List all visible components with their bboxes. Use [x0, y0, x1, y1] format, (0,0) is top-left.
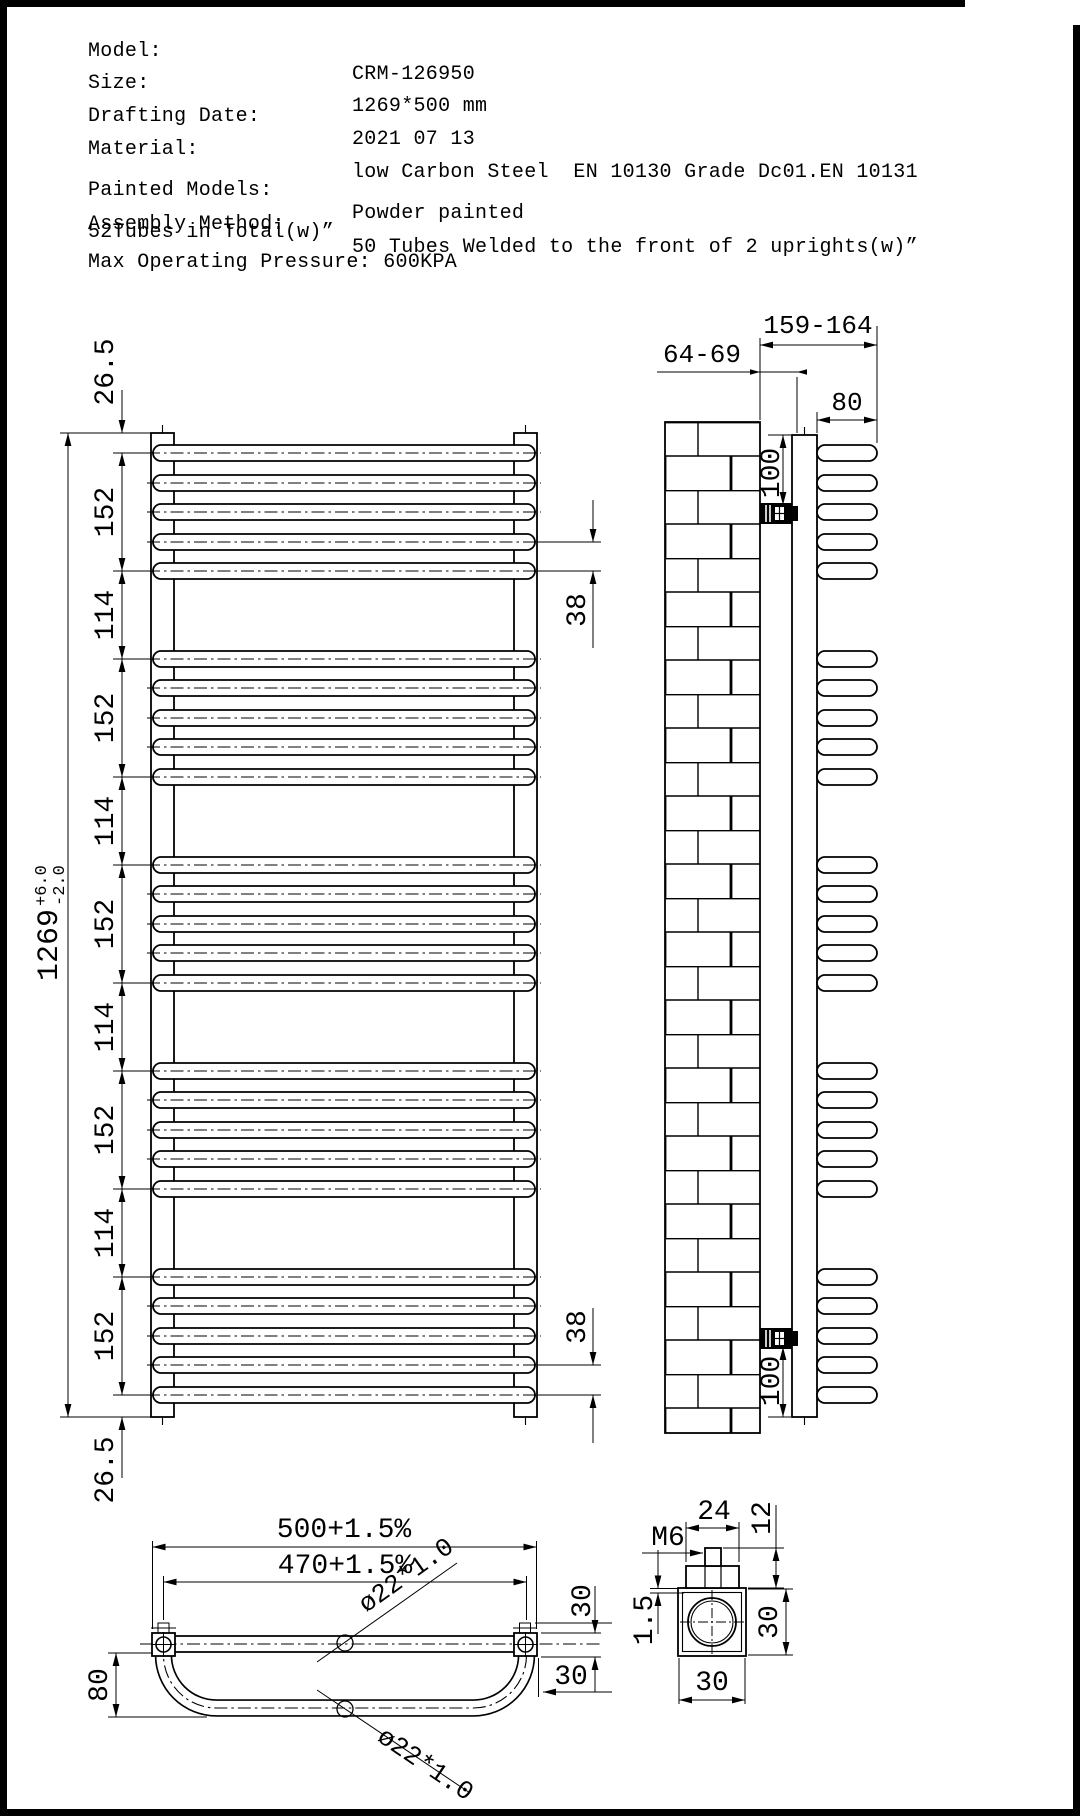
dim-label: 500+1.5%: [277, 1515, 412, 1546]
dim-label: 159-164: [763, 311, 872, 341]
technical-drawing: 1269 +6.0 -2.0: [0, 0, 1080, 1816]
front-dim-38-top: 38: [537, 500, 601, 648]
dim-label: 152: [91, 899, 122, 949]
dim-label: 80: [831, 388, 862, 418]
dim-label: 100: [757, 1356, 788, 1406]
bottom-dim-470: 470+1.5%: [164, 1551, 527, 1620]
bottom-dim-30-horiz: 30: [539, 1658, 613, 1697]
dim-label: 38: [563, 593, 594, 627]
dim-label: 30: [755, 1605, 786, 1639]
detail-dim-30-right: 30: [748, 1589, 793, 1655]
dim-label: 30: [568, 1584, 599, 1618]
dim-tol-minus: -2.0: [51, 865, 70, 906]
dim-label: 152: [91, 487, 122, 537]
bottom-view: 500+1.5% 470+1.5% 80 30: [85, 1515, 612, 1808]
detail-dim-wall: 1.5: [630, 1550, 684, 1645]
side-tubes: [817, 445, 877, 1403]
wall-bracket-bottom: [760, 1328, 798, 1349]
drawing-sheet: Model: CRM-126950 Size: 1269*500 mm Draf…: [0, 0, 1080, 1816]
dim-label-overall: 1269: [33, 909, 67, 981]
dim-label: 152: [91, 1311, 122, 1361]
upright-section-right: [513, 1623, 612, 1657]
dim-label: 26.5: [91, 1436, 122, 1503]
dim-label: 114: [91, 1208, 122, 1258]
front-dim-38-bottom: 38: [537, 1308, 601, 1443]
detail-view: 24 12 M6 1.5: [630, 1497, 793, 1704]
dim-label: 100: [757, 448, 788, 498]
thread-label: M6: [651, 1523, 685, 1554]
dim-tol-plus: +6.0: [33, 865, 52, 906]
dim-label: 30: [554, 1662, 588, 1693]
side-dim-100-bottom: 100: [757, 1347, 791, 1417]
tube-spec-label: ø22*1.0: [372, 1722, 479, 1808]
dim-label: 1.5: [630, 1595, 661, 1645]
dim-label: 152: [91, 693, 122, 743]
dim-label: 114: [91, 796, 122, 846]
front-dim-chain: 26.5 152 114 152 114 152 114 152 114 152…: [91, 338, 151, 1503]
wall: [665, 422, 760, 1433]
dim-label: 24: [697, 1497, 731, 1528]
side-dim-100-top: 100: [757, 435, 791, 505]
side-view: 159-164 64-69 80 100 100: [657, 311, 877, 1433]
dim-label: 80: [85, 1668, 116, 1702]
dim-label: 152: [91, 1105, 122, 1155]
dim-label: 114: [91, 590, 122, 640]
front-tubes: [147, 445, 541, 1403]
detail-dim-30-bottom: 30: [679, 1658, 745, 1704]
dim-label: 12: [748, 1501, 779, 1535]
dim-label: 30: [695, 1668, 729, 1699]
front-view: 1269 +6.0 -2.0: [33, 338, 601, 1503]
dim-label: 64-69: [663, 340, 741, 370]
dim-label: 38: [563, 1310, 594, 1344]
upright-section-left: [151, 1623, 176, 1657]
dim-label: 26.5: [91, 338, 122, 405]
dim-label: 114: [91, 1002, 122, 1052]
wall-bracket-top: [760, 503, 798, 524]
